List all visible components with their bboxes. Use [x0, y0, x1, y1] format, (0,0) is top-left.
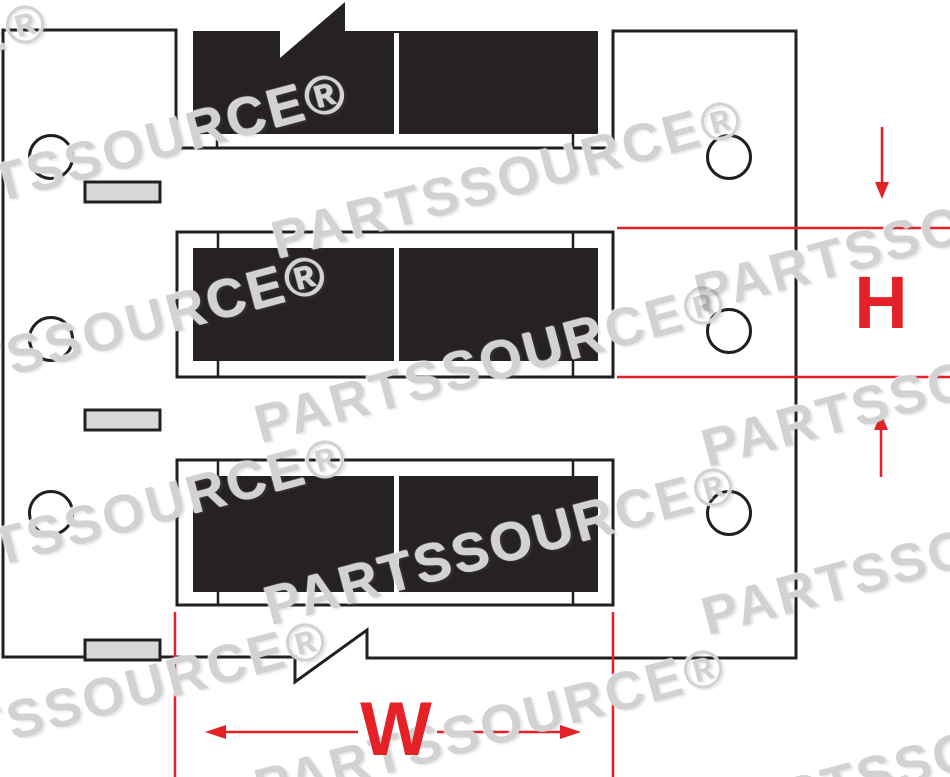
- sleeve-divider: [394, 476, 399, 592]
- sleeve-divider: [394, 248, 399, 361]
- wire-marker-sleeve-diagram: PARTSSOURCE® PARTSSOURCE® PARTSSOURCE® P…: [0, 0, 950, 777]
- sleeve-row-2: [177, 232, 613, 377]
- w-arrow-right-icon: [560, 725, 581, 739]
- feed-hole: [30, 318, 73, 361]
- w-dimension-label: W: [356, 690, 436, 770]
- feed-hole: [708, 492, 751, 535]
- sleeve-divider: [394, 33, 399, 134]
- h-dimension-label: H: [845, 264, 917, 342]
- h-arrow-down-icon: [875, 182, 889, 199]
- w-arrow-left-icon: [205, 725, 226, 739]
- liner-slot: [85, 182, 160, 202]
- liner-slot: [85, 640, 160, 660]
- feed-hole: [30, 136, 73, 179]
- sleeve-row-3: [177, 460, 613, 605]
- feed-hole: [708, 310, 751, 353]
- liner-slot: [85, 410, 160, 430]
- diagram-line-art: [0, 0, 950, 777]
- feed-hole: [30, 492, 73, 535]
- feed-hole: [708, 136, 751, 179]
- sleeve-row-1: [176, 0, 613, 148]
- h-arrow-up-icon: [874, 413, 888, 430]
